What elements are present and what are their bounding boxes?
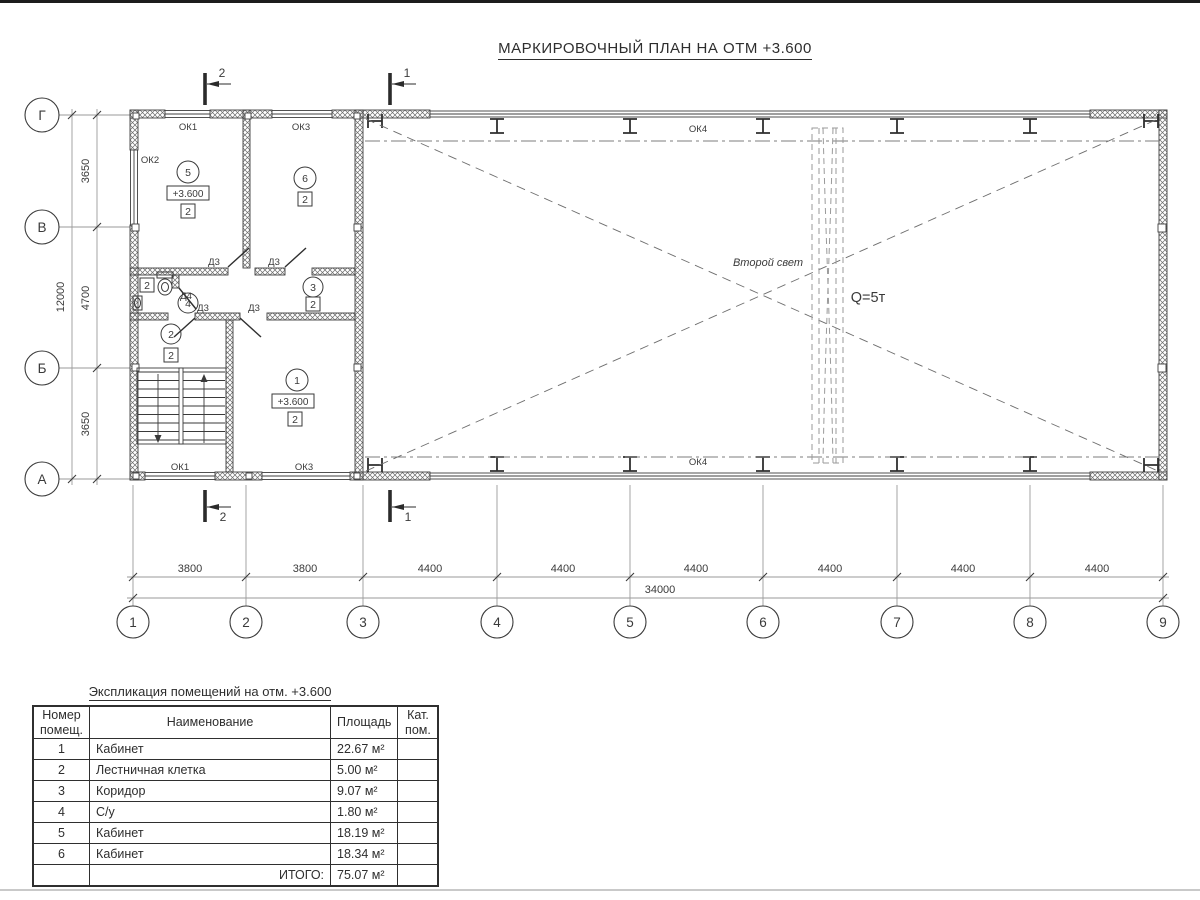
svg-text:2: 2 (310, 299, 316, 311)
svg-text:+3.600: +3.600 (278, 397, 309, 408)
svg-text:2: 2 (185, 206, 191, 218)
room-schedule-table: Номерпомещ. Наименование Площадь Кат.пом… (32, 705, 439, 887)
svg-text:ОК1: ОК1 (171, 462, 189, 473)
table-row: 1 Кабинет 22.67 м² (33, 739, 438, 760)
svg-text:ОК3: ОК3 (295, 462, 313, 473)
room-name: Лестничная клетка (90, 760, 331, 781)
svg-text:1: 1 (404, 66, 411, 80)
svg-text:5: 5 (185, 167, 191, 179)
room-area: 1.80 м² (331, 802, 398, 823)
svg-text:2: 2 (144, 280, 150, 292)
crane-capacity-label: Q=5т (851, 290, 886, 306)
svg-text:Б: Б (38, 361, 47, 376)
room-category (398, 739, 439, 760)
svg-text:Д3: Д3 (197, 303, 209, 314)
schedule-total-row: ИТОГО: 75.07 м² (33, 865, 438, 887)
svg-text:3: 3 (359, 615, 367, 630)
col-header-area: Площадь (331, 706, 398, 739)
room-area: 9.07 м² (331, 781, 398, 802)
total-empty-cell (33, 865, 90, 887)
dimension-left-labels: 3650 4700 3650 12000 (55, 159, 92, 436)
svg-text:В: В (37, 220, 46, 235)
room-name: Кабинет (90, 844, 331, 865)
svg-text:3800: 3800 (293, 563, 317, 575)
svg-text:3650: 3650 (80, 412, 92, 436)
total-category-cell (398, 865, 439, 887)
total-area: 75.07 м² (331, 865, 398, 887)
svg-text:4700: 4700 (80, 286, 92, 310)
svg-text:2: 2 (292, 414, 298, 426)
svg-text:5: 5 (626, 615, 634, 630)
svg-text:34000: 34000 (645, 584, 676, 596)
svg-text:6: 6 (759, 615, 767, 630)
room-number: 6 (33, 844, 90, 865)
svg-text:4400: 4400 (418, 563, 442, 575)
col-header-number: Номерпомещ. (33, 706, 90, 739)
room-category (398, 823, 439, 844)
table-row: 3 Коридор 9.07 м² (33, 781, 438, 802)
svg-text:3800: 3800 (178, 563, 202, 575)
svg-text:4400: 4400 (1085, 563, 1109, 575)
schedule-header-row: Номерпомещ. Наименование Площадь Кат.пом… (33, 706, 438, 739)
svg-text:ОК4: ОК4 (689, 124, 707, 135)
svg-text:А: А (37, 472, 46, 487)
svg-text:7: 7 (893, 615, 901, 630)
windows (131, 111, 1091, 480)
table-row: 5 Кабинет 18.19 м² (33, 823, 438, 844)
svg-text:ОК4: ОК4 (689, 457, 707, 468)
svg-text:4400: 4400 (684, 563, 708, 575)
room-area: 18.34 м² (331, 844, 398, 865)
svg-text:2: 2 (302, 194, 308, 206)
room-number: 2 (33, 760, 90, 781)
toilet-icon (157, 272, 173, 295)
room-area: 18.19 м² (331, 823, 398, 844)
room-name: Кабинет (90, 823, 331, 844)
svg-text:ОК2: ОК2 (141, 155, 159, 166)
svg-text:12000: 12000 (55, 282, 67, 313)
axis-col-labels: 1 2 3 4 5 6 7 8 9 (129, 615, 1167, 630)
room-area: 5.00 м² (331, 760, 398, 781)
svg-text:2: 2 (168, 350, 174, 362)
room-category (398, 802, 439, 823)
svg-text:4400: 4400 (818, 563, 842, 575)
svg-text:4: 4 (185, 298, 191, 310)
axis-row-circles (25, 98, 59, 496)
room-category (398, 760, 439, 781)
svg-text:Д3: Д3 (248, 303, 260, 314)
column-marks (132, 113, 1166, 479)
svg-text:1: 1 (294, 375, 300, 387)
room-name: Коридор (90, 781, 331, 802)
door-leaves (174, 248, 306, 337)
room-number: 3 (33, 781, 90, 802)
axis-extension-lines (59, 109, 1169, 606)
svg-text:2: 2 (220, 510, 227, 524)
svg-text:Д3: Д3 (208, 257, 220, 268)
crane-rail-lines (365, 141, 1159, 457)
svg-text:9: 9 (1159, 615, 1167, 630)
col-header-name: Наименование (90, 706, 331, 739)
table-row: 6 Кабинет 18.34 м² (33, 844, 438, 865)
room-name: Кабинет (90, 739, 331, 760)
svg-text:6: 6 (302, 173, 308, 185)
total-label: ИТОГО: (90, 865, 331, 887)
drawing-sheet: МАРКИРОВОЧНЫЙ ПЛАН НА ОТМ +3.600 (0, 0, 1200, 900)
dimension-bottom-labels: 3800 3800 4400 4400 4400 4400 4400 4400 … (178, 563, 1109, 596)
svg-text:2: 2 (219, 66, 226, 80)
axis-col-circles (117, 606, 1179, 638)
room-number: 1 (33, 739, 90, 760)
svg-text:2: 2 (168, 329, 174, 341)
room-number: 5 (33, 823, 90, 844)
table-row: 2 Лестничная клетка 5.00 м² (33, 760, 438, 781)
svg-text:ОК1: ОК1 (179, 122, 197, 133)
svg-text:+3.600: +3.600 (173, 189, 204, 200)
svg-text:4400: 4400 (951, 563, 975, 575)
svg-text:ОК3: ОК3 (292, 122, 310, 133)
svg-text:8: 8 (1026, 615, 1034, 630)
crane-symbol (812, 128, 843, 463)
svg-text:4: 4 (493, 615, 501, 630)
svg-text:Д3: Д3 (268, 257, 280, 268)
svg-text:1: 1 (405, 510, 412, 524)
svg-text:3: 3 (310, 282, 316, 294)
col-header-category: Кат.пом. (398, 706, 439, 739)
svg-text:4400: 4400 (551, 563, 575, 575)
table-row: 4 С/у 1.80 м² (33, 802, 438, 823)
schedule-title: Экспликация помещений на отм. +3.600 (60, 684, 360, 699)
room-number: 4 (33, 802, 90, 823)
sheet-bottom-border (0, 889, 1200, 891)
axis-row-labels: Г В Б А (37, 108, 46, 487)
room-category (398, 781, 439, 802)
svg-text:2: 2 (242, 615, 250, 630)
svg-text:1: 1 (129, 615, 137, 630)
walls (130, 110, 1167, 480)
room-name: С/у (90, 802, 331, 823)
second-light-label: Второй свет (733, 257, 803, 269)
void-cross-lines (366, 119, 1158, 471)
room-area: 22.67 м² (331, 739, 398, 760)
stairs (137, 368, 226, 444)
floor-plan-svg: Г В Б А 1 2 3 4 5 6 7 8 9 3800 3800 4400… (0, 0, 1200, 665)
svg-text:3650: 3650 (80, 159, 92, 183)
svg-text:Г: Г (38, 108, 46, 123)
room-category (398, 844, 439, 865)
